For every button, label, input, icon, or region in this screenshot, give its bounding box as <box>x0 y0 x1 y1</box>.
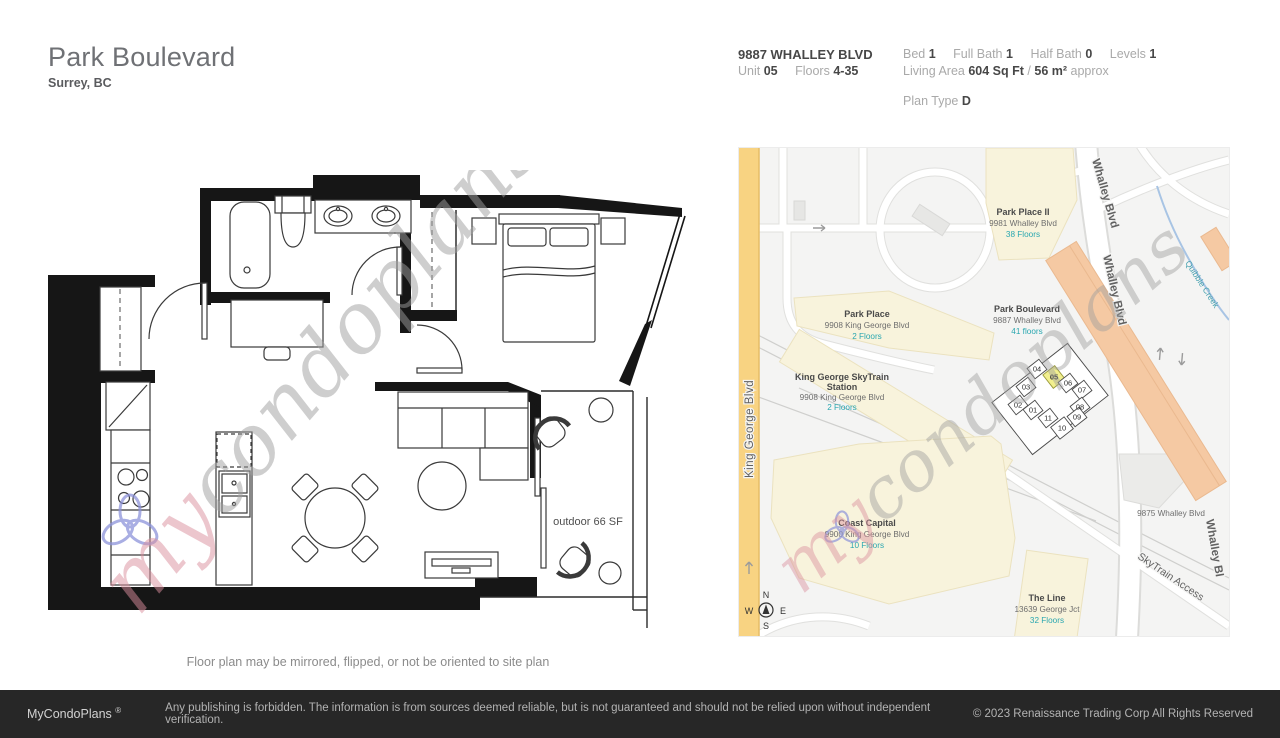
half-bath-value: 0 <box>1085 47 1092 61</box>
svg-text:9908 King George Blvd: 9908 King George Blvd <box>800 393 885 402</box>
fridge <box>106 382 150 430</box>
living-area-label: Living Area <box>903 64 965 78</box>
unit-11: 11 <box>1044 414 1052 423</box>
coffee-table <box>418 462 466 510</box>
bedroom-window <box>646 214 685 328</box>
road-label-king-george: King George Blvd <box>744 380 756 478</box>
full-bath-value: 1 <box>1006 47 1013 61</box>
svg-text:32 Floors: 32 Floors <box>1030 616 1064 625</box>
registered-mark: ® <box>115 706 121 715</box>
compass-s: S <box>763 621 769 631</box>
tv-console <box>425 552 498 578</box>
living-area-divider: / <box>1027 64 1030 78</box>
svg-text:13639 George Jct: 13639 George Jct <box>1014 605 1080 614</box>
svg-text:Park Place II: Park Place II <box>996 207 1049 217</box>
unit-07: 07 <box>1078 386 1086 395</box>
toilet <box>275 196 311 247</box>
svg-text:38 Floors: 38 Floors <box>1006 230 1040 239</box>
unit-value: 05 <box>764 64 778 78</box>
floors-value: 4-35 <box>833 64 858 78</box>
balcony-chair-bottom <box>553 539 597 585</box>
unit-label: Unit <box>738 64 760 78</box>
unit-08: 08 <box>1076 403 1084 412</box>
floors-label: Floors <box>795 64 830 78</box>
entry-closet <box>100 287 141 371</box>
unit-09: 09 <box>1073 413 1081 422</box>
brand: MyCondoPlans ® <box>27 706 121 721</box>
footer-copyright: © 2023 Renaissance Trading Corp All Righ… <box>973 708 1253 720</box>
svg-text:Station: Station <box>827 382 858 392</box>
svg-text:2 Floors: 2 Floors <box>852 332 882 341</box>
footer-bar: MyCondoPlans ® Any publishing is forbidd… <box>0 690 1280 738</box>
entry-door <box>149 283 207 339</box>
svg-text:9908 King George Blvd: 9908 King George Blvd <box>825 321 910 330</box>
svg-text:The Line: The Line <box>1028 593 1065 603</box>
compass-e: E <box>780 606 786 616</box>
levels-label: Levels <box>1110 47 1146 61</box>
page-title: Park Boulevard <box>48 42 235 73</box>
site-map: 01 02 03 04 05 06 07 08 09 10 11 Park Pl… <box>738 147 1230 637</box>
compass-n: N <box>763 590 770 600</box>
living-area-m2: 56 m² <box>1034 64 1067 78</box>
dining-table <box>291 473 379 563</box>
bed-label: Bed <box>903 47 925 61</box>
living-area-sqft: 604 Sq Ft <box>968 64 1024 78</box>
svg-text:Park Place: Park Place <box>844 309 890 319</box>
living-area-approx: approx <box>1071 64 1109 78</box>
footer-disclaimer: Any publishing is forbidden. The informa… <box>165 702 973 726</box>
bed <box>499 214 599 342</box>
living-area-line: Living Area 604 Sq Ft / 56 m² approx <box>903 63 1156 80</box>
half-bath-label: Half Bath <box>1030 47 1081 61</box>
levels-value: 1 <box>1149 47 1156 61</box>
spec-address-block: 9887 WHALLEY BLVD Unit 05 Floors 4-35 <box>738 46 873 80</box>
unit-floors-line: Unit 05 Floors 4-35 <box>738 63 873 80</box>
svg-text:9981 Whalley Blvd: 9981 Whalley Blvd <box>989 219 1057 228</box>
floor-plan-drawing: outdoor 66 SF mycondoplans <box>48 170 688 645</box>
full-bath-label: Full Bath <box>953 47 1002 61</box>
bathtub <box>230 202 270 288</box>
balcony-table-bottom <box>599 562 621 584</box>
nightstand-right <box>601 218 625 244</box>
outdoor-label: outdoor 66 SF <box>553 516 623 528</box>
svg-text:2 Floors: 2 Floors <box>827 403 857 412</box>
site-map-drawing: 01 02 03 04 05 06 07 08 09 10 11 Park Pl… <box>739 148 1229 636</box>
brand-name: MyCondoPlans <box>27 708 112 722</box>
svg-text:King George SkyTrain: King George SkyTrain <box>795 372 889 382</box>
label-9875-whalley: 9875 Whalley Blvd <box>1137 509 1205 518</box>
unit-10: 10 <box>1058 424 1066 433</box>
small-building <box>794 201 805 220</box>
title-block: Park Boulevard Surrey, BC <box>48 42 235 90</box>
plan-disclaimer-note: Floor plan may be mirrored, flipped, or … <box>48 655 688 669</box>
bedroom-door <box>417 325 462 373</box>
sofa <box>398 392 528 480</box>
plan-type-line: Plan Type D <box>903 93 1156 110</box>
page-subtitle: Surrey, BC <box>48 76 235 90</box>
bed-value: 1 <box>929 47 936 61</box>
balcony-table-top <box>589 398 613 422</box>
plan-type-label: Plan Type <box>903 94 958 108</box>
address: 9887 WHALLEY BLVD <box>738 46 873 63</box>
bed-bath-line: Bed 1 Full Bath 1 Half Bath 0 Levels 1 <box>903 46 1156 63</box>
compass-w: W <box>745 606 754 616</box>
floor-plan: outdoor 66 SF mycondoplans <box>48 170 688 645</box>
plan-type-value: D <box>962 94 971 108</box>
spec-details-block: Bed 1 Full Bath 1 Half Bath 0 Levels 1 L… <box>903 46 1156 110</box>
